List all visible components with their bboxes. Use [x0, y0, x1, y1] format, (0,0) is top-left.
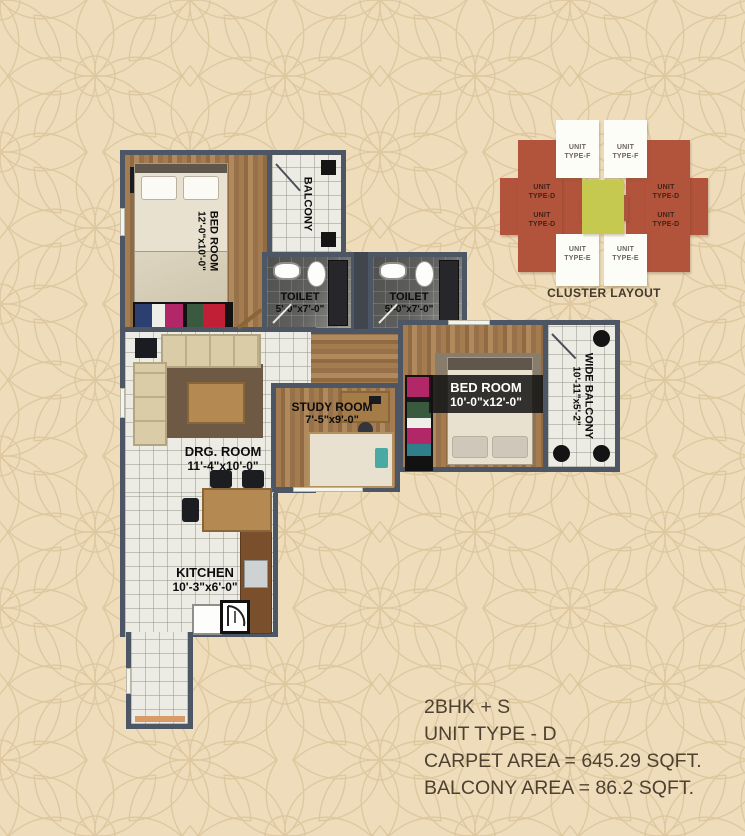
single-bed [308, 432, 394, 488]
room-wide-balcony: WIDE BALCONY 10'-11"x5'-2" [543, 320, 620, 472]
washbasin [273, 262, 301, 280]
info-carpet-area: CARPET AREA = 645.29 SQFT. [424, 748, 702, 775]
cluster-layout-caption: CLUSTER LAYOUT [498, 286, 710, 300]
unit-label-d: UNITTYPE-D [506, 184, 578, 202]
washbasin [379, 262, 407, 280]
cluster-layout: UNITTYPE-D UNITTYPE-D UNITTYPE-D UNITTYP… [498, 118, 710, 308]
room-dims: 7'-5"x9'-0" [276, 414, 388, 427]
entrance-door-icon [220, 600, 250, 634]
window [126, 668, 131, 694]
planter [321, 232, 336, 247]
label-toilet-1: TOILET 5'-0"x7'-0" [267, 291, 333, 316]
planter [553, 445, 570, 462]
planter [593, 330, 610, 347]
room-bedroom-2: BED ROOM 10'-0"x12'-0" [398, 320, 548, 472]
toilet-wc [415, 261, 434, 287]
room-toilet-1: TOILET 5'-0"x7'-0" [262, 252, 356, 333]
label-study: STUDY ROOM 7'-5"x9'-0" [276, 400, 388, 427]
unit-label-d: UNITTYPE-D [630, 212, 702, 230]
label-balcony: BALCONY [300, 176, 313, 230]
dining-chair [210, 470, 232, 488]
room-name: STUDY ROOM [276, 400, 388, 414]
room-dims: 12'-0"x10'-0" [195, 211, 207, 272]
room-dims: 10'-11"x5'-2" [569, 353, 581, 439]
label-bedroom-1: BED ROOM 12'-0"x10'-0" [195, 211, 220, 272]
toilet-wc [307, 261, 326, 287]
tv-unit [135, 338, 157, 358]
building-type-d-right [646, 140, 690, 272]
info-unit-type: UNIT TYPE - D [424, 721, 702, 748]
label-bedroom-2: BED ROOM 10'-0"x12'-0" [429, 375, 543, 413]
planter [593, 445, 610, 462]
dining-chair [242, 470, 264, 488]
room-dims: 5'-0"x7'-0" [267, 304, 333, 316]
coffee-table [187, 382, 245, 424]
window [120, 208, 125, 236]
room-name: BED ROOM [207, 211, 220, 272]
room-name: WIDE BALCONY [581, 353, 594, 439]
kitchen-strip [126, 632, 193, 729]
sofa [133, 362, 167, 446]
info-bhk: 2BHK + S [424, 694, 702, 721]
room-name: BALCONY [300, 176, 313, 230]
hall-passage [311, 329, 403, 387]
label-toilet-2: TOILET 5'-0"x7'-0" [375, 291, 443, 316]
unit-label-d: UNITTYPE-D [630, 184, 702, 202]
unit-label-f: UNITTYPE-F [556, 144, 599, 162]
room-name: BED ROOM [429, 380, 543, 395]
room-study: STUDY ROOM 7'-5"x9'-0" [271, 383, 400, 492]
room-name: TOILET [267, 291, 333, 304]
info-block: 2BHK + S UNIT TYPE - D CARPET AREA = 645… [424, 694, 702, 802]
room-balcony: BALCONY [267, 150, 346, 257]
unit-label-f: UNITTYPE-F [604, 144, 647, 162]
pillow [375, 448, 388, 468]
label-wide-balcony: WIDE BALCONY 10'-11"x5'-2" [569, 353, 594, 439]
window [293, 487, 363, 492]
central-core [582, 180, 624, 234]
room-name: TOILET [375, 291, 443, 304]
door-sill [135, 716, 185, 722]
unit-label-e: UNITTYPE-E [556, 246, 599, 264]
page: { "page": { "background_color": "#eedcba… [0, 0, 745, 836]
unit-label-e: UNITTYPE-E [604, 246, 647, 264]
unit-label-d: UNITTYPE-D [506, 212, 578, 230]
window [120, 388, 125, 418]
kitchen-sink [192, 604, 222, 635]
sofa [161, 334, 261, 368]
dining-chair [182, 498, 199, 522]
planter [321, 160, 336, 175]
info-balcony-area: BALCONY AREA = 86.2 SQFT. [424, 775, 702, 802]
room-dims: 10'-0"x12'-0" [429, 395, 543, 409]
door-swing [275, 163, 301, 191]
room-bedroom-1: BED ROOM 12'-0"x10'-0" [120, 150, 272, 332]
window [448, 320, 490, 325]
dining-table [202, 488, 272, 532]
stove [244, 560, 268, 588]
